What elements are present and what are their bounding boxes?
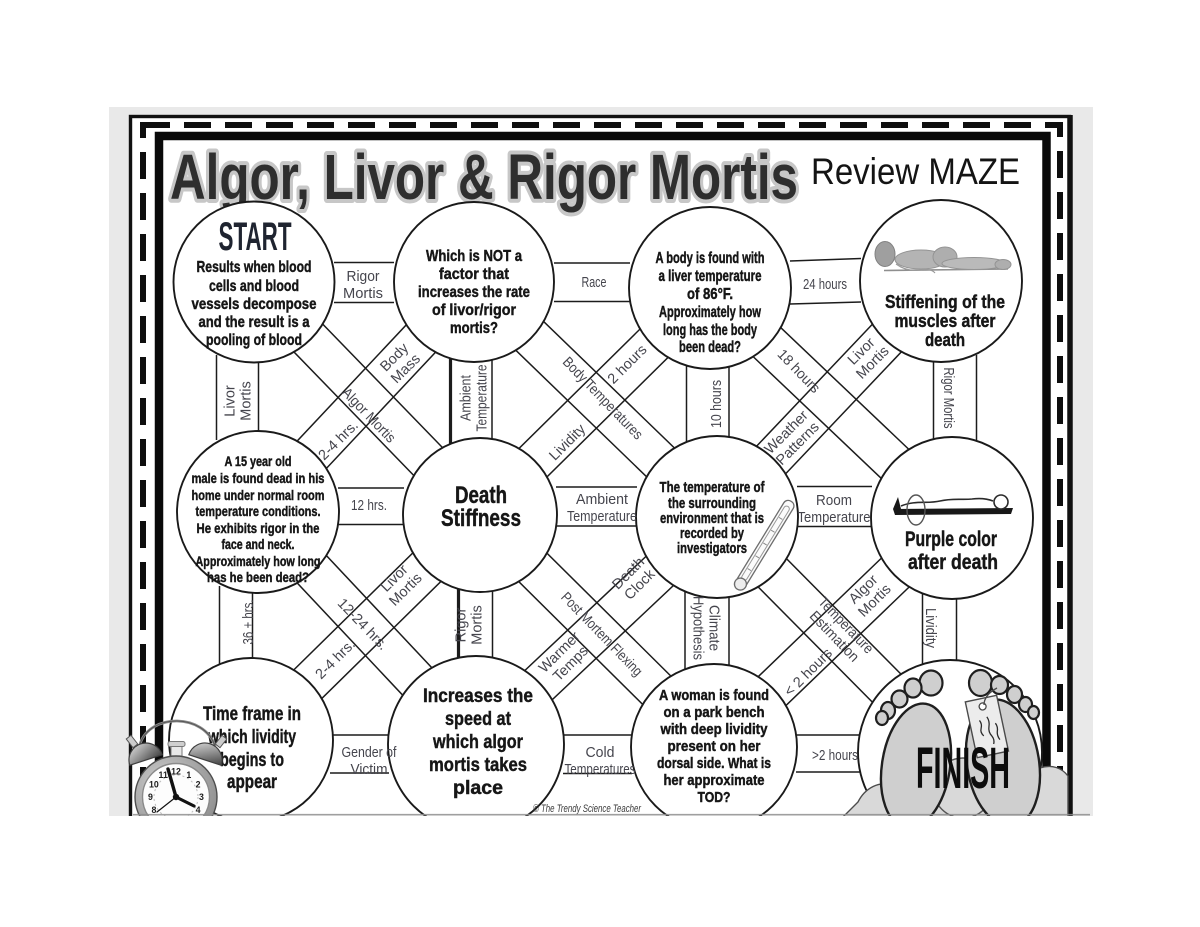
svg-text:Ambient: Ambient	[576, 491, 629, 508]
svg-text:appear: appear	[227, 772, 277, 793]
svg-text:death: death	[925, 329, 965, 350]
svg-text:Increases the: Increases the	[423, 685, 533, 707]
svg-text:He exhibits rigor in the: He exhibits rigor in the	[197, 521, 320, 537]
svg-text:temperature conditions.: temperature conditions.	[196, 504, 321, 520]
svg-text:Climate: Climate	[706, 605, 722, 651]
svg-text:Rigor: Rigor	[347, 268, 380, 285]
svg-text:8: 8	[151, 805, 156, 815]
svg-text:Time frame in: Time frame in	[203, 704, 301, 725]
svg-text:A 15 year old: A 15 year old	[225, 454, 292, 470]
svg-text:male is found dead in his: male is found dead in his	[192, 471, 325, 487]
svg-text:with deep lividity: with deep lividity	[660, 721, 768, 738]
svg-text:7: 7	[161, 814, 166, 824]
svg-text:begins to: begins to	[220, 750, 284, 771]
svg-text:long has the body: long has the body	[663, 322, 757, 339]
svg-text:12: 12	[171, 767, 181, 777]
svg-text:Approximately how long: Approximately how long	[196, 554, 321, 570]
svg-text:Lividity: Lividity	[922, 608, 938, 649]
svg-text:mortis takes: mortis takes	[429, 754, 527, 776]
svg-text:Rigor Mortis: Rigor Mortis	[940, 368, 956, 429]
svg-text:18 hours: 18 hours	[774, 347, 823, 397]
svg-text:10 hours: 10 hours	[709, 380, 725, 428]
svg-text:face and neck.: face and neck.	[222, 537, 295, 553]
svg-text:Purple color: Purple color	[905, 528, 997, 551]
svg-text:Race: Race	[582, 274, 607, 291]
svg-text:3: 3	[199, 792, 204, 802]
svg-text:speed at: speed at	[445, 708, 511, 730]
svg-text:Ambient: Ambient	[459, 375, 475, 421]
svg-text:2-4 hrs.: 2-4 hrs.	[316, 418, 362, 464]
svg-text:6: 6	[174, 818, 179, 828]
svg-text:Livor: Livor	[223, 385, 239, 417]
svg-text:dorsal side. What is: dorsal side. What is	[657, 755, 771, 772]
svg-text:Temperature: Temperature	[798, 509, 871, 526]
svg-text:The temperature of: The temperature of	[660, 479, 766, 496]
svg-text:Temperature: Temperature	[567, 508, 637, 525]
svg-text:© The Trendy Science Teacher: © The Trendy Science Teacher	[533, 803, 642, 815]
svg-text:been dead?: been dead?	[679, 339, 741, 356]
svg-text:Gender of: Gender of	[342, 744, 398, 761]
svg-text:muscles after: muscles after	[895, 310, 996, 331]
svg-text:Which is NOT a: Which is NOT a	[426, 248, 522, 265]
svg-text:Stiffness: Stiffness	[441, 505, 521, 532]
svg-text:Stiffening of the: Stiffening of the	[885, 291, 1005, 312]
svg-text:has he been dead?: has he been dead?	[207, 570, 309, 586]
svg-text:a liver temperature: a liver temperature	[659, 268, 762, 285]
svg-text:12 hrs.: 12 hrs.	[351, 497, 387, 514]
svg-text:>2 hours: >2 hours	[812, 747, 858, 764]
svg-text:Room: Room	[816, 492, 852, 509]
svg-text:< 2 hours: < 2 hours	[782, 646, 836, 700]
svg-text:present on her: present on her	[668, 738, 761, 755]
svg-text:TOD?: TOD?	[698, 789, 731, 806]
svg-text:Approximately how: Approximately how	[659, 304, 762, 321]
svg-text:9: 9	[148, 792, 153, 802]
svg-text:Review MAZE: Review MAZE	[811, 150, 1020, 192]
svg-text:Victim: Victim	[351, 761, 388, 778]
svg-text:Rigor: Rigor	[454, 608, 470, 643]
svg-text:Mortis: Mortis	[343, 285, 383, 302]
svg-text:FINISH: FINISH	[916, 736, 1010, 801]
svg-text:2: 2	[196, 780, 201, 790]
svg-text:and the result is a: and the result is a	[199, 314, 310, 331]
svg-text:investigators: investigators	[677, 540, 747, 557]
svg-text:5: 5	[186, 814, 191, 824]
svg-text:her approximate: her approximate	[664, 772, 765, 789]
svg-text:after death: after death	[908, 551, 998, 574]
svg-text:Hypothesis: Hypothesis	[690, 596, 706, 660]
svg-text:factor that: factor that	[439, 266, 510, 283]
svg-text:place: place	[453, 777, 503, 799]
svg-text:36 + hrs.: 36 + hrs.	[241, 600, 257, 645]
svg-text:pooling of blood: pooling of blood	[206, 332, 302, 349]
svg-text:11: 11	[159, 770, 168, 780]
svg-text:on a park bench: on a park bench	[664, 704, 765, 721]
svg-text:of 86°F.: of 86°F.	[687, 286, 733, 303]
svg-text:4: 4	[196, 805, 201, 815]
svg-text:Temperatures: Temperatures	[565, 761, 636, 778]
svg-text:START: START	[219, 215, 292, 259]
svg-text:increases the rate: increases the rate	[418, 284, 530, 301]
svg-text:Mortis: Mortis	[470, 605, 486, 644]
svg-text:10: 10	[149, 780, 159, 790]
svg-text:of livor/rigor: of livor/rigor	[432, 302, 516, 319]
svg-text:A woman is found: A woman is found	[659, 687, 769, 704]
svg-text:1: 1	[186, 770, 191, 780]
svg-text:vessels decompose: vessels decompose	[192, 296, 317, 313]
svg-text:24 hours: 24 hours	[803, 276, 847, 293]
svg-text:cells and blood: cells and blood	[209, 278, 299, 295]
svg-text:A body is found with: A body is found with	[656, 250, 765, 267]
svg-text:Lividity: Lividity	[546, 421, 589, 464]
svg-text:which algor: which algor	[432, 731, 523, 753]
svg-text:mortis?: mortis?	[450, 320, 498, 337]
svg-text:home under normal room: home under normal room	[192, 488, 325, 504]
svg-text:Results when blood: Results when blood	[197, 259, 312, 276]
svg-text:Temperature: Temperature	[475, 365, 491, 432]
svg-text:Mortis: Mortis	[239, 381, 255, 420]
svg-text:Cold: Cold	[586, 744, 615, 761]
